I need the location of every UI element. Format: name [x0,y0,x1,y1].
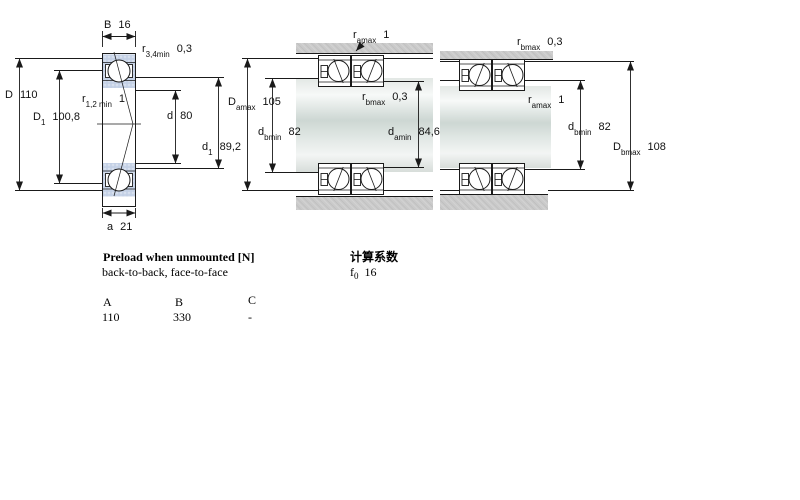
preload-subtitle: back-to-back, face-to-face [102,265,228,279]
left-bearing-cross-section [97,52,141,207]
calc-factor-title: 计算系数 [350,250,398,264]
bearing-drawing-page: B16 r3,4min0,3 D110 D1100,8 r1,2 min1 d8… [0,0,800,500]
dim-label-D: D110 [5,89,38,102]
dim-label-rbmax-middle: rbmax0,3 [362,91,408,109]
preload-col-header-b: B [175,295,183,309]
preload-value-b: 330 [173,310,191,324]
dim-label-a: a21 [107,221,132,234]
dim-label-ramax-right: ramax1 [528,94,564,112]
dim-label-r12: r1,2 min1 [82,93,125,111]
dim-label-B: B16 [104,19,131,32]
preload-title: Preload when unmounted [N] [103,250,254,264]
dim-label-r34: r3,4min0,3 [142,43,192,61]
preload-value-a: 110 [102,310,120,324]
dim-label-Damax: Damax105 [228,96,281,114]
dim-label-rbmax-right: rbmax0,3 [517,36,563,54]
dim-label-d1: d189,2 [202,141,241,159]
preload-col-header-c: C [248,293,256,307]
dim-label-damin: damin84,6 [388,126,440,144]
dim-label-dbmin-middle: dbmin82 [258,126,301,144]
f0-factor: f016 [350,265,377,283]
dim-label-dbmin-right: dbmin82 [568,121,611,139]
dim-label-Dbmax: Dbmax108 [613,141,666,159]
dim-label-D1: D1100,8 [33,111,80,129]
preload-value-c: - [248,310,252,324]
preload-col-header-a: A [103,295,112,309]
dim-label-d: d80 [167,110,192,123]
dim-label-ramax-middle: ramax1 [353,29,389,47]
